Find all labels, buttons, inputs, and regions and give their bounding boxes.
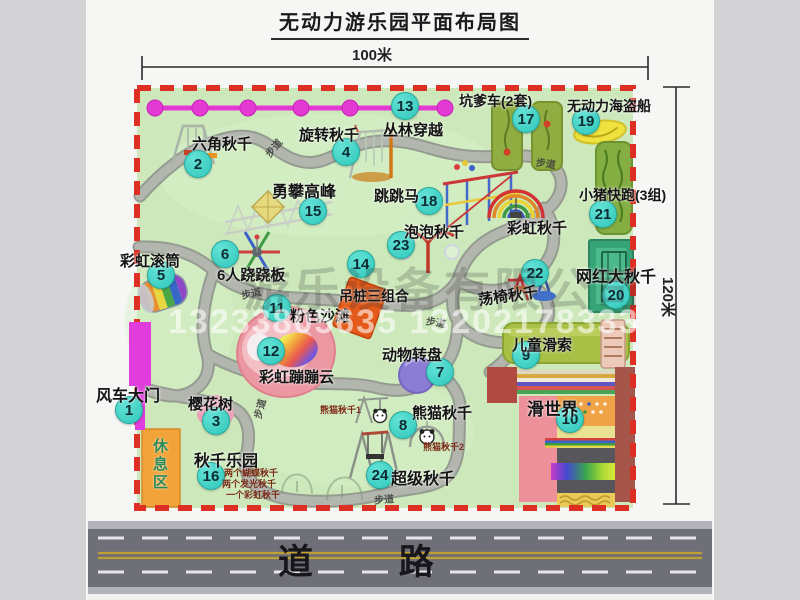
piggy-run-track — [596, 142, 632, 234]
screenshot-stage: 无动力游乐园平面布局图 100米 120米 休息区 道 路 游乐设备有限公司 1… — [0, 0, 800, 600]
dimension-width-label: 100米 — [352, 44, 392, 65]
animal-turntable — [399, 357, 435, 393]
dimension-height-label: 120米 — [658, 277, 679, 317]
page-title: 无动力游乐园平面布局图 — [0, 6, 800, 40]
phone-watermark: 13233805635 13202178333 — [168, 303, 639, 342]
page-title-text: 无动力游乐园平面布局图 — [271, 6, 529, 40]
road-label: 道 路 — [278, 534, 472, 585]
rest-area-label: 休息区 — [149, 438, 170, 492]
